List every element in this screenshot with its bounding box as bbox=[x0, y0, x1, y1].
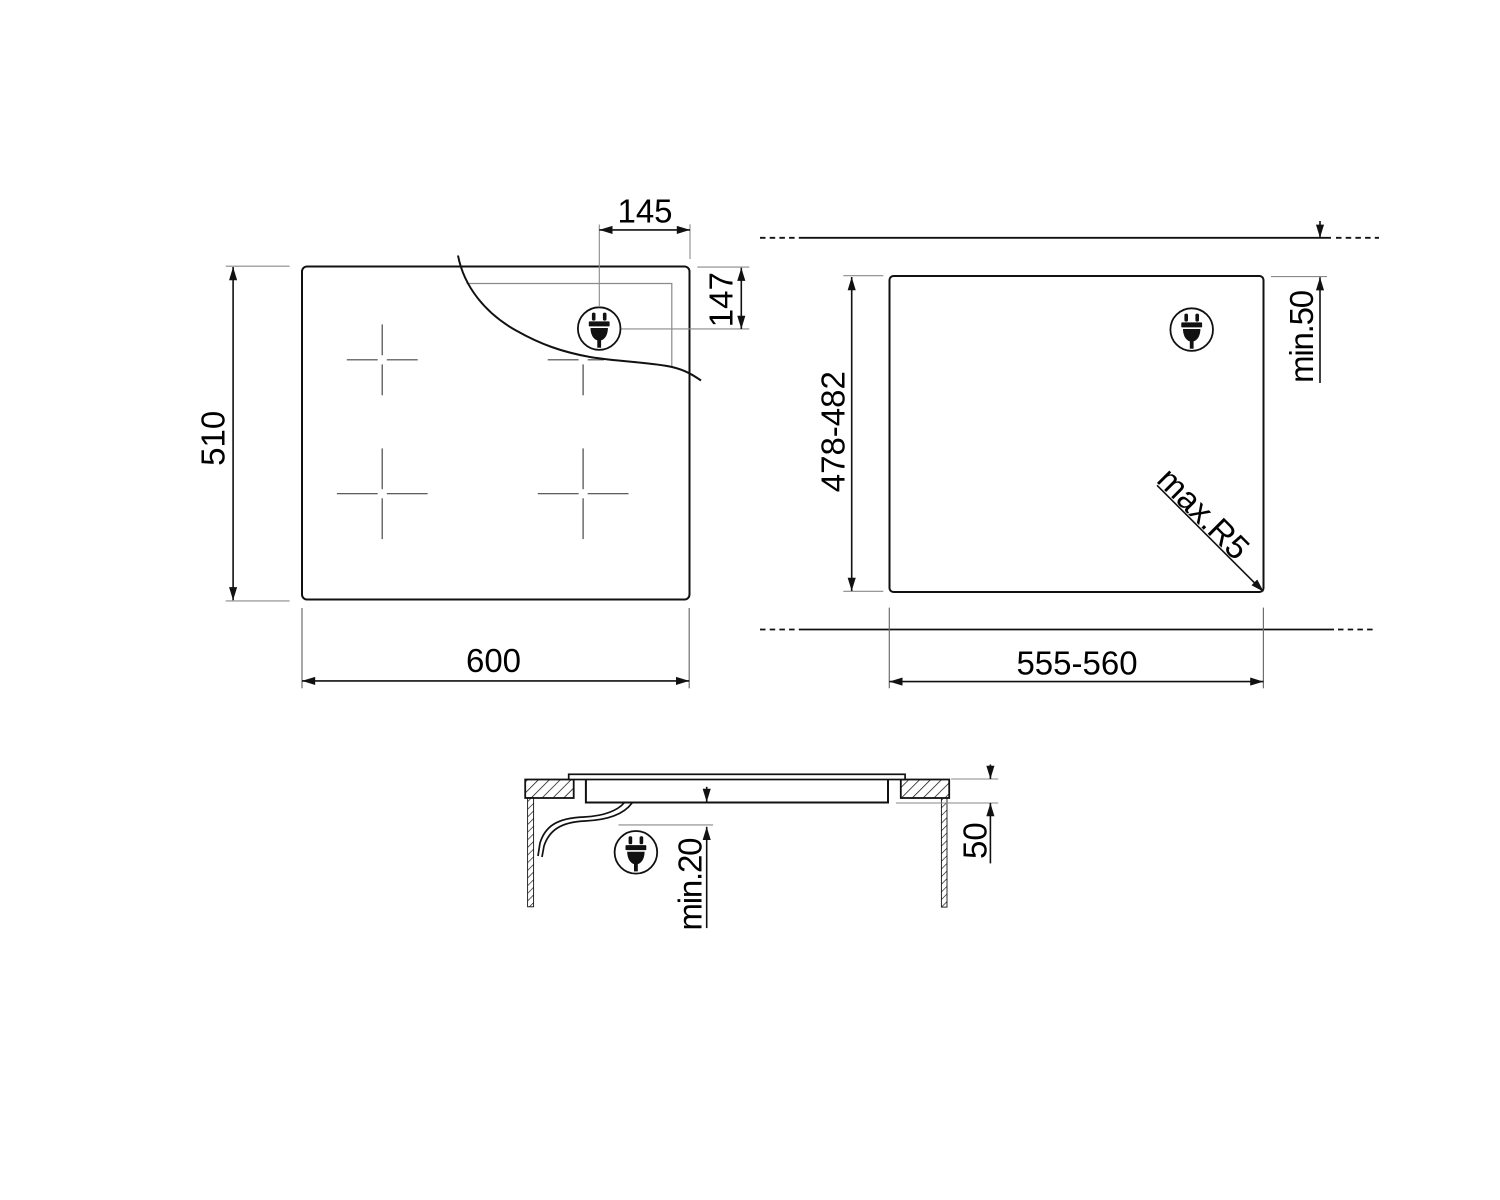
svg-text:50: 50 bbox=[957, 822, 994, 859]
svg-text:min.50: min.50 bbox=[1283, 290, 1320, 383]
svg-text:min.20: min.20 bbox=[671, 838, 708, 931]
svg-text:510: 510 bbox=[194, 411, 231, 466]
svg-text:478-482: 478-482 bbox=[815, 371, 852, 492]
svg-text:600: 600 bbox=[466, 642, 521, 679]
svg-text:555-560: 555-560 bbox=[1016, 644, 1137, 681]
svg-text:147: 147 bbox=[703, 272, 740, 327]
svg-text:145: 145 bbox=[617, 192, 672, 229]
